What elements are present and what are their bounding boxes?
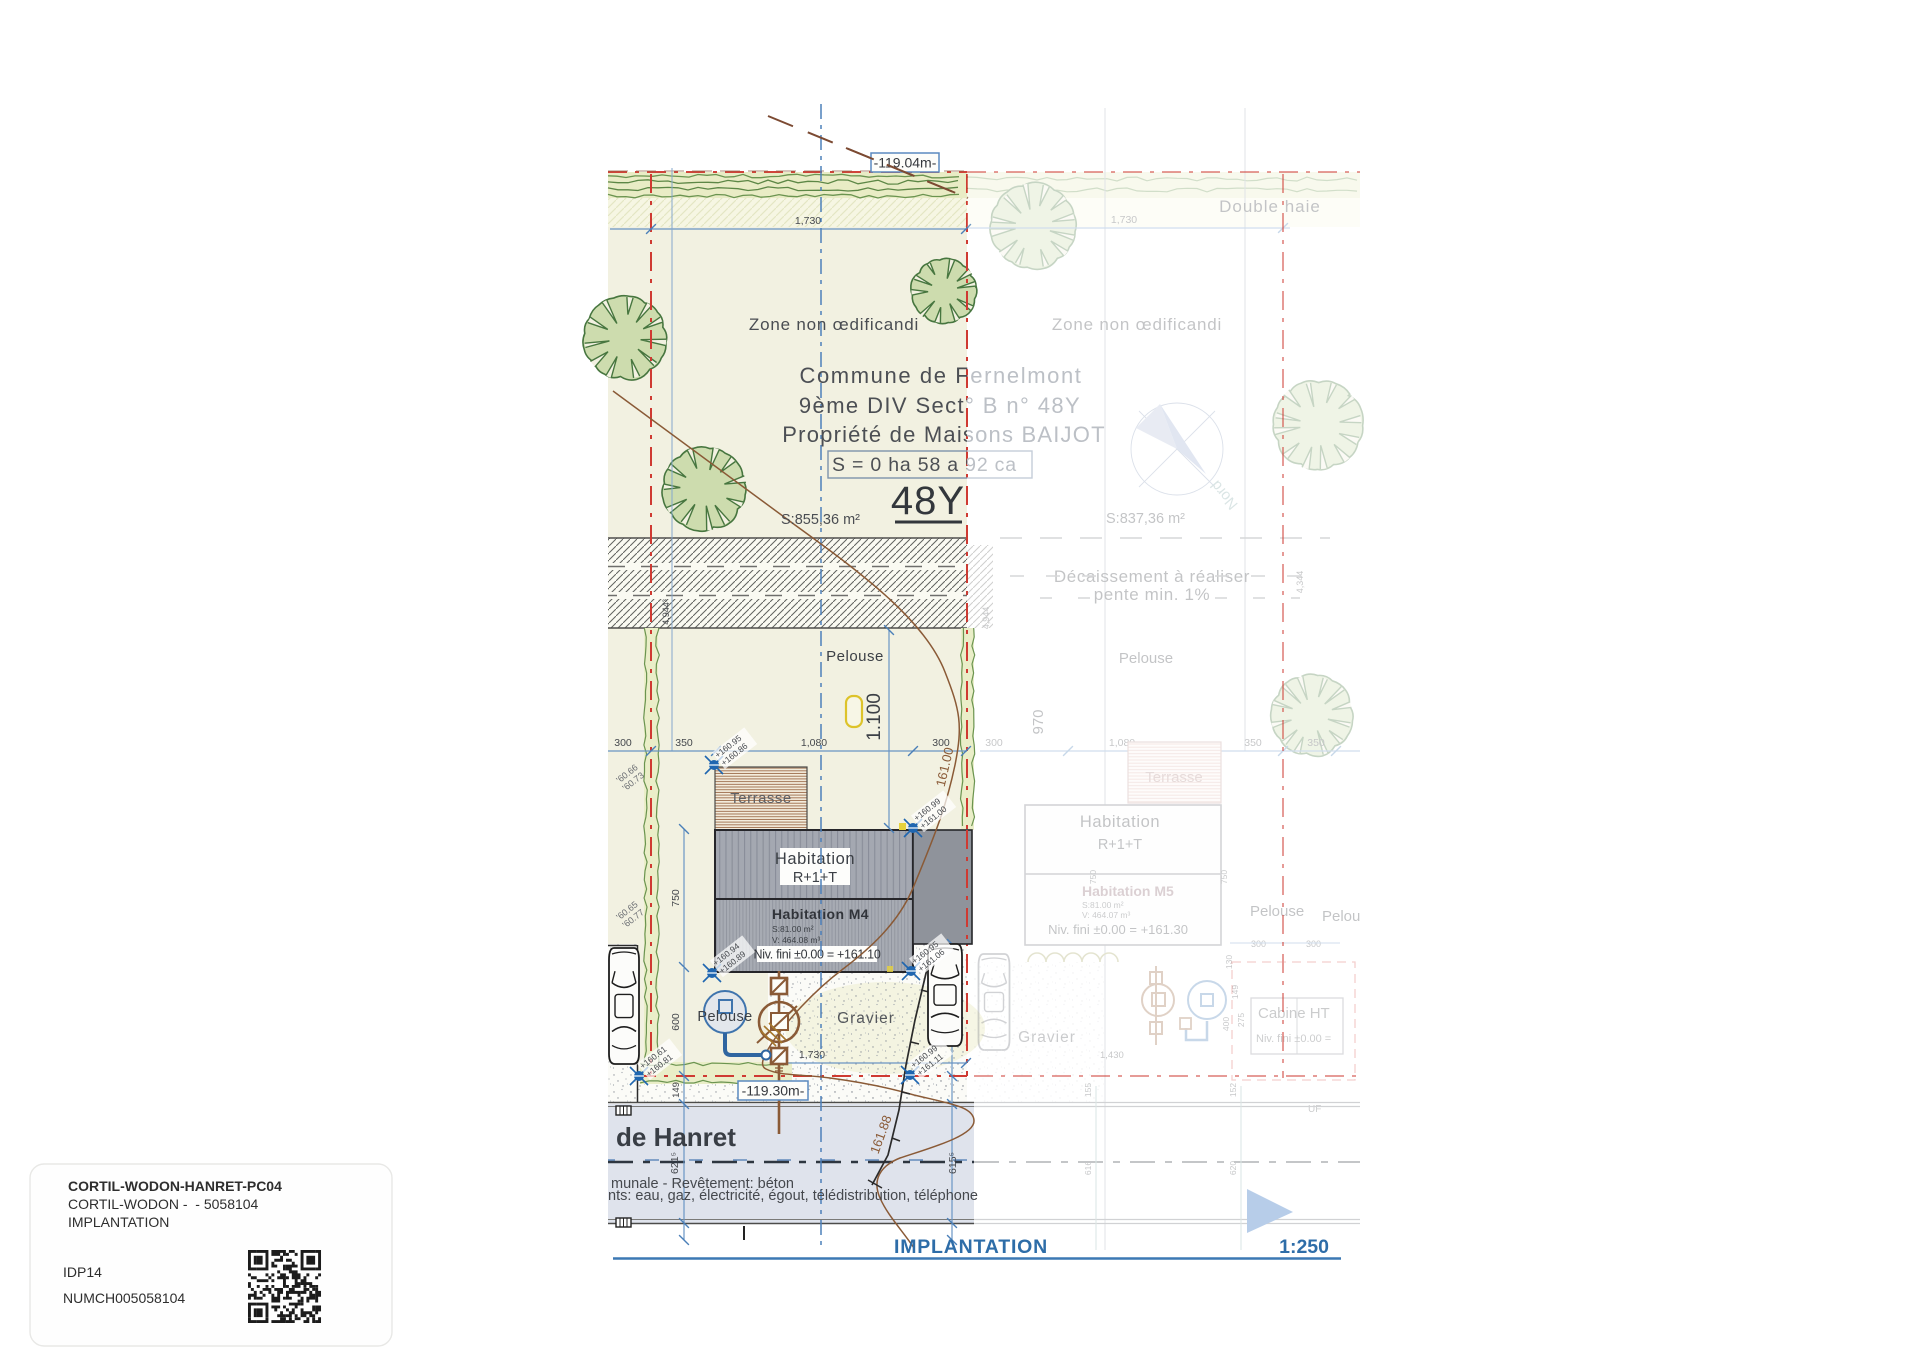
svg-text:Habitation M5: Habitation M5 (1082, 883, 1174, 899)
svg-text:Zone non œdificandi: Zone non œdificandi (1052, 315, 1222, 334)
svg-text:Pelouse: Pelouse (697, 1009, 752, 1025)
svg-text:Cabine HT: Cabine HT (1258, 1005, 1330, 1022)
svg-text:616: 616 (1083, 1161, 1093, 1175)
svg-text:IMPLANTATION: IMPLANTATION (68, 1214, 169, 1230)
svg-text:4,344: 4,344 (1295, 571, 1305, 594)
svg-text:S:837,36 m²: S:837,36 m² (1106, 511, 1185, 527)
svg-text:UF: UF (1308, 1104, 1321, 1115)
svg-text:Terrasse: Terrasse (1145, 769, 1203, 786)
svg-text:4,944: 4,944 (981, 607, 991, 630)
svg-text:V: 464.07 m³: V: 464.07 m³ (1082, 910, 1131, 920)
svg-text:CORTIL-WODON - - 5058104: CORTIL-WODON - - 5058104 (68, 1196, 259, 1212)
svg-text:Habitation: Habitation (1080, 813, 1160, 831)
svg-text:Niv. fini ±0.00 =: Niv. fini ±0.00 = (1256, 1033, 1331, 1045)
svg-text:615⁵: 615⁵ (947, 1152, 959, 1174)
svg-text:1,080: 1,080 (801, 737, 827, 749)
svg-text:Double haie: Double haie (1219, 197, 1321, 216)
svg-text:nts: eau, gaz, électricité, ég: nts: eau, gaz, électricité, égout, téléd… (608, 1188, 978, 1204)
svg-text:350: 350 (1307, 737, 1325, 749)
svg-text:NUMCH005058104: NUMCH005058104 (63, 1290, 185, 1306)
svg-text:pente min. 1%: pente min. 1% (1094, 585, 1210, 604)
svg-text:S:855,36 m²: S:855,36 m² (781, 512, 860, 528)
svg-text:4,944³: 4,944³ (661, 599, 671, 625)
svg-text:Terrasse: Terrasse (730, 790, 792, 807)
svg-text:Pelouse: Pelouse (1250, 903, 1304, 920)
svg-text:600: 600 (670, 1013, 682, 1031)
svg-text:Pelouse: Pelouse (1119, 650, 1173, 667)
svg-text:Pelouse: Pelouse (826, 648, 884, 665)
svg-text:1:250: 1:250 (1279, 1236, 1329, 1258)
svg-text:IDP14: IDP14 (63, 1264, 102, 1280)
svg-text:155: 155 (1083, 1083, 1093, 1097)
svg-text:S:81.00 m²: S:81.00 m² (1082, 900, 1124, 910)
svg-text:-119.30m-: -119.30m- (742, 1083, 805, 1099)
svg-text:Pelou: Pelou (1322, 908, 1360, 925)
svg-text:R+1+T: R+1+T (793, 870, 837, 886)
svg-text:IMPLANTATION: IMPLANTATION (894, 1236, 1048, 1258)
svg-text:CORTIL-WODON-HANRET-PC04: CORTIL-WODON-HANRET-PC04 (68, 1178, 282, 1194)
svg-text:152: 152 (1228, 1083, 1238, 1097)
svg-text:300: 300 (1306, 939, 1321, 949)
svg-text:R+1+T: R+1+T (1098, 837, 1142, 853)
svg-text:48Y: 48Y (891, 479, 965, 523)
svg-text:400: 400 (1221, 1017, 1231, 1031)
svg-text:149: 149 (671, 1082, 682, 1098)
svg-text:275: 275 (1236, 1013, 1246, 1027)
svg-text:Habitation: Habitation (775, 850, 855, 868)
svg-text:970: 970 (1030, 709, 1047, 734)
svg-text:Zone non œdificandi: Zone non œdificandi (749, 315, 919, 334)
svg-text:750: 750 (1088, 870, 1098, 884)
svg-text:621⁵: 621⁵ (669, 1152, 681, 1174)
svg-text:-119.04m-: -119.04m- (874, 155, 937, 171)
svg-text:750: 750 (670, 889, 682, 907)
svg-text:1.100: 1.100 (864, 693, 885, 741)
svg-text:de Hanret: de Hanret (616, 1122, 736, 1152)
svg-text:350: 350 (675, 737, 693, 749)
svg-text:1,730: 1,730 (1111, 214, 1137, 226)
svg-text:Niv. fini ±0.00 = +161.30: Niv. fini ±0.00 = +161.30 (1048, 922, 1188, 937)
svg-text:350: 350 (1244, 737, 1262, 749)
svg-text:V: 464.08 m³: V: 464.08 m³ (772, 935, 821, 945)
svg-text:300: 300 (1251, 939, 1266, 949)
svg-text:300: 300 (614, 737, 632, 749)
svg-text:Gravier: Gravier (837, 1010, 895, 1027)
svg-text:S:81.00 m²: S:81.00 m² (772, 924, 814, 934)
svg-text:620: 620 (1228, 1161, 1238, 1175)
svg-text:1,730: 1,730 (795, 215, 821, 227)
svg-text:750: 750 (1219, 870, 1229, 884)
svg-text:300: 300 (985, 737, 1003, 749)
